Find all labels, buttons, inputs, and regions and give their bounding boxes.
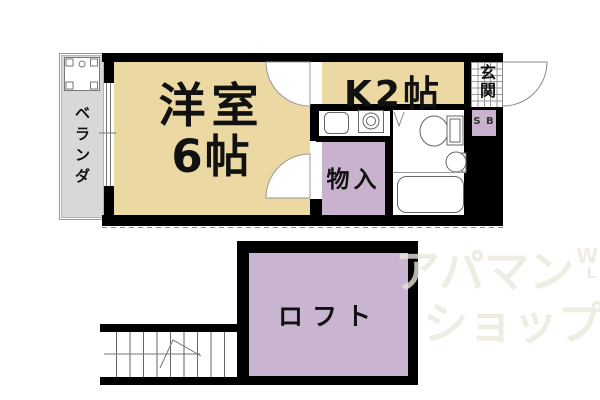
wall bbox=[102, 53, 503, 62]
stairs-wall bbox=[100, 324, 237, 332]
entrance-door-icon bbox=[503, 62, 547, 106]
storage-label: 物入 bbox=[322, 160, 385, 194]
wall bbox=[104, 53, 114, 83]
watermark-line2: ショップ bbox=[423, 298, 600, 350]
western-room-size: 6帖 bbox=[113, 132, 310, 182]
wall bbox=[464, 53, 471, 104]
watermark-line1: アパマンWL bbox=[395, 246, 600, 298]
western-room-label: 洋室 6帖 bbox=[113, 82, 310, 182]
stairs-icon bbox=[117, 332, 225, 377]
wall bbox=[102, 215, 503, 226]
apamanshop-watermark: アパマンWL ショップ bbox=[395, 246, 600, 350]
stairs-wall bbox=[100, 377, 418, 385]
entrance-label: 玄関 bbox=[479, 64, 497, 100]
western-room-name: 洋室 bbox=[113, 82, 310, 132]
bathroom-floor bbox=[393, 110, 466, 215]
kitchen-label: K2帖 bbox=[322, 65, 464, 117]
loft-label: ロフト bbox=[250, 297, 408, 333]
floor-plan: 洋室 6帖 K2帖 物入 玄関 S B ベランダ ロフト アパマンWL ショップ bbox=[0, 0, 600, 400]
shoe-box-label: S B bbox=[472, 116, 496, 127]
watermark-mark: WL bbox=[576, 246, 598, 281]
veranda-label: ベランダ bbox=[74, 103, 91, 187]
wall bbox=[310, 199, 322, 215]
stairs-direction-icon bbox=[104, 340, 201, 368]
